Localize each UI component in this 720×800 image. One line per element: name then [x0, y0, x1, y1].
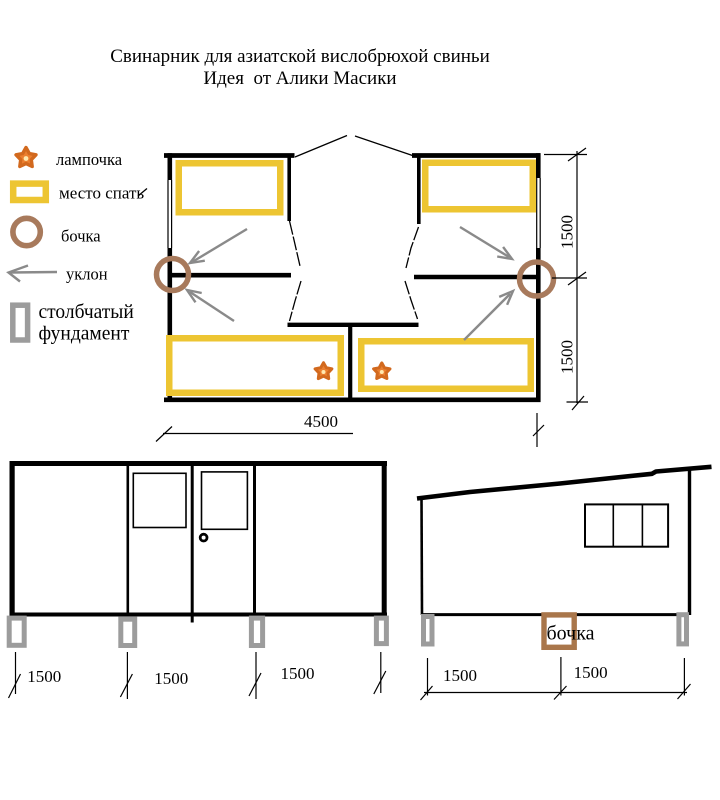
svg-text:4500: 4500: [304, 412, 338, 431]
svg-text:1500: 1500: [27, 667, 61, 686]
svg-text:1500: 1500: [558, 215, 577, 249]
svg-text:Идея от Алики Масики: Идея от Алики Масики: [203, 68, 396, 89]
svg-text:1500: 1500: [154, 669, 188, 688]
svg-text:лампочка: лампочка: [56, 150, 123, 169]
svg-text:столбчатый: столбчатый: [39, 302, 134, 323]
svg-text:фундамент: фундамент: [39, 324, 130, 345]
svg-text:бочка: бочка: [61, 227, 101, 246]
svg-text:1500: 1500: [281, 664, 315, 683]
svg-text:место спать: место спать: [59, 184, 144, 203]
svg-text:1500: 1500: [574, 663, 608, 682]
svg-text:1500: 1500: [558, 340, 577, 374]
svg-text:уклон: уклон: [66, 265, 108, 284]
svg-text:бочка: бочка: [547, 623, 595, 645]
svg-text:Свинарник для азиатской вислоб: Свинарник для азиатской вислобрюхой свин…: [110, 46, 490, 67]
svg-text:1500: 1500: [443, 666, 477, 685]
